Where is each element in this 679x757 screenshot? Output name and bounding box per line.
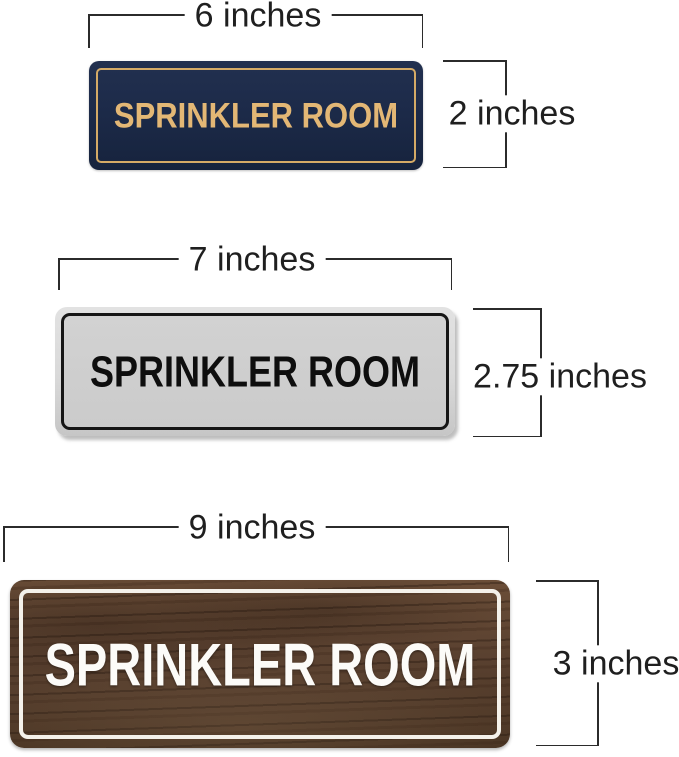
width-dimension-tick-left (88, 14, 90, 48)
product-image: 6 inches SPRINKLER ROOM 2 inches 7 inche… (0, 0, 679, 757)
width-dimension-label: 9 inches (179, 509, 326, 546)
sign-text: SPRINKLER ROOM (45, 629, 476, 699)
width-dimension-tick-left (58, 258, 60, 290)
height-dimension-label: 2 inches (439, 95, 586, 132)
width-dimension-tick-right (451, 258, 453, 290)
width-dimension-label: 7 inches (179, 241, 326, 278)
width-dimension-tick-right (508, 526, 510, 562)
height-dimension-tick-top (473, 308, 540, 310)
height-dimension-tick-top (443, 60, 505, 62)
height-dimension-tick-bottom (473, 436, 540, 438)
sign-plate-navy: SPRINKLER ROOM (89, 61, 423, 170)
sign-plate-silver: SPRINKLER ROOM (55, 307, 455, 436)
width-dimension-tick-right (422, 14, 424, 48)
sign-text: SPRINKLER ROOM (114, 95, 398, 136)
sign-plate-wood: SPRINKLER ROOM (10, 580, 510, 748)
sign-text: SPRINKLER ROOM (90, 346, 420, 396)
width-dimension-tick-left (3, 526, 5, 562)
height-dimension-tick-bottom (443, 167, 505, 169)
height-dimension-label: 3 inches (543, 645, 679, 682)
height-dimension-label: 2.75 inches (463, 358, 657, 395)
width-dimension-label: 6 inches (185, 0, 332, 35)
height-dimension-tick-bottom (536, 745, 597, 747)
height-dimension-tick-top (536, 580, 597, 582)
